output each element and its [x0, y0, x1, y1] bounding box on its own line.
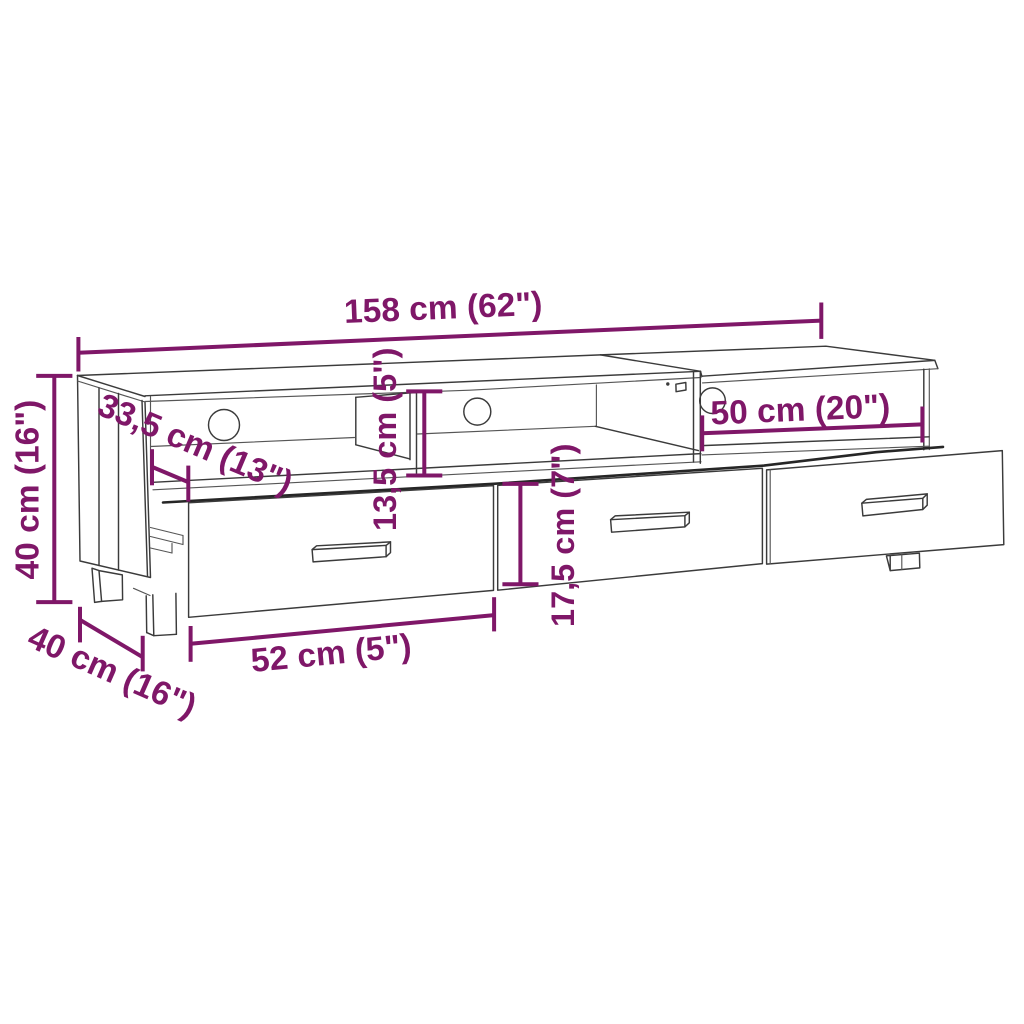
svg-text:50 cm (20"): 50 cm (20") [710, 388, 891, 432]
svg-text:13,5 cm (5"): 13,5 cm (5") [367, 348, 403, 531]
svg-text:17,5 cm (7"): 17,5 cm (7") [545, 444, 581, 627]
svg-text:40 cm (16"): 40 cm (16") [10, 400, 47, 580]
